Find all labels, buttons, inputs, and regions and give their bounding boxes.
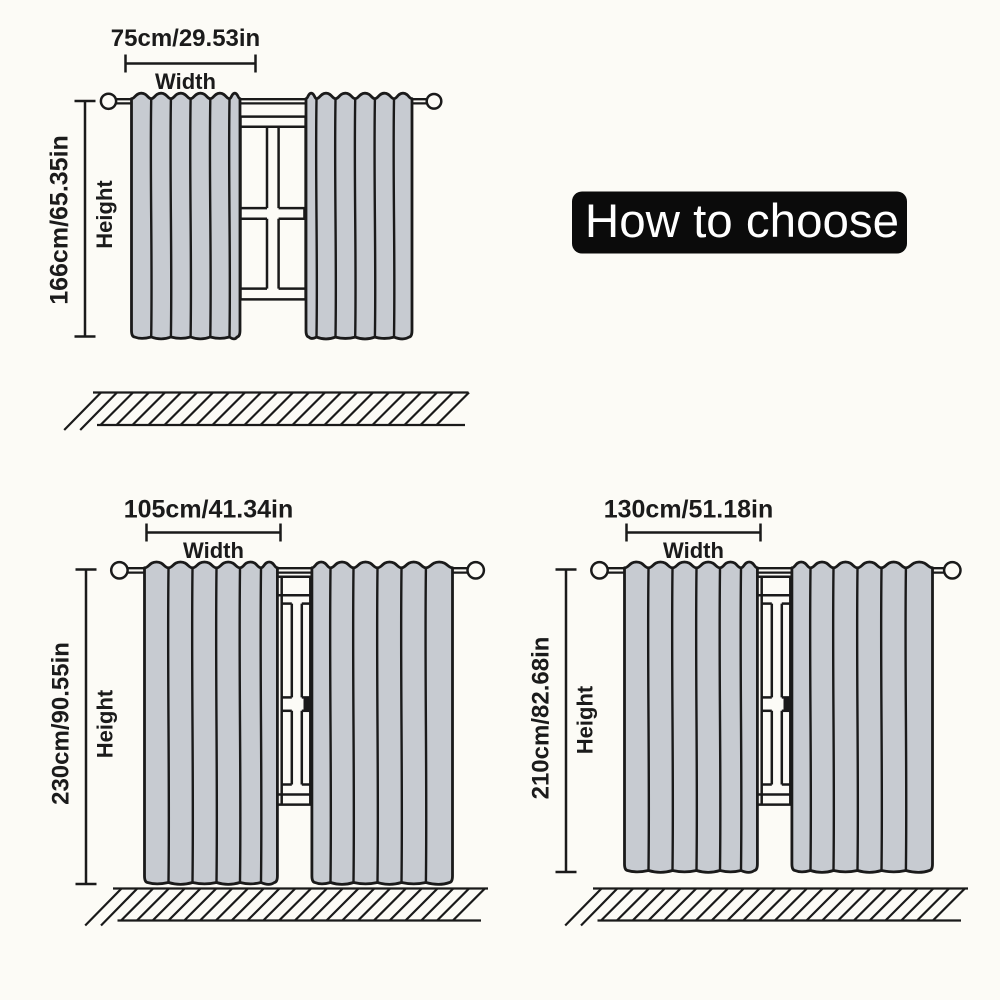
svg-text:Height: Height	[573, 685, 598, 754]
svg-text:230cm/90.55in: 230cm/90.55in	[48, 642, 75, 805]
svg-text:Height: Height	[92, 180, 117, 249]
svg-text:Width: Width	[183, 538, 244, 563]
svg-text:130cm/51.18in: 130cm/51.18in	[604, 496, 774, 524]
svg-text:Width: Width	[155, 69, 216, 94]
svg-text:Width: Width	[663, 538, 724, 563]
svg-text:166cm/65.35in: 166cm/65.35in	[46, 135, 74, 305]
svg-text:210cm/82.68in: 210cm/82.68in	[528, 637, 555, 800]
svg-text:Height: Height	[93, 689, 118, 758]
svg-text:105cm/41.34in: 105cm/41.34in	[124, 496, 294, 524]
svg-text:How to choose: How to choose	[585, 195, 899, 248]
svg-text:75cm/29.53in: 75cm/29.53in	[111, 25, 260, 52]
